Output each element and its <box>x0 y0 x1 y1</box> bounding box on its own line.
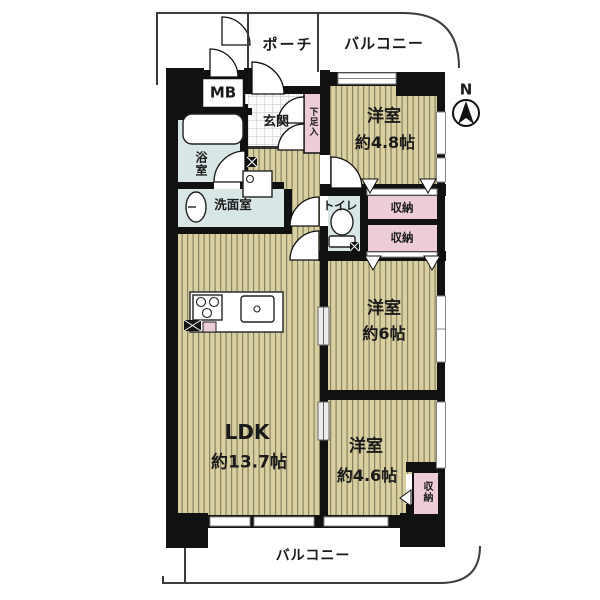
floorplan-drawing <box>0 0 600 600</box>
ldk-size: 約13.7帖 <box>211 455 287 472</box>
bathroom-label: 浴室 <box>195 151 207 177</box>
balcony-top-label: バルコニー <box>344 37 424 52</box>
toilet-bowl <box>331 209 353 235</box>
bathtub <box>183 114 243 144</box>
compass <box>453 100 479 126</box>
ldk-name: LDK <box>225 422 270 442</box>
bedroom2-size: 約6帖 <box>362 326 405 342</box>
closet-upper-label: 収納 <box>391 202 414 214</box>
bedroom1-name: 洋室 <box>367 109 401 126</box>
compass-north-label: N <box>460 83 473 98</box>
floorplan-canvas: ポーチ バルコニー バルコニー MB 玄関 下足入 浴室 洗面室 トイレ 収納 … <box>0 0 600 600</box>
bedroom3-closet-label: 収納 <box>421 481 431 503</box>
bedroom2-name: 洋室 <box>367 301 401 318</box>
vanity-counter <box>243 171 272 197</box>
toilet-label: トイレ <box>323 200 358 212</box>
meter-box-label: MB <box>210 86 236 101</box>
bedroom3-size: 約4.6帖 <box>337 468 397 484</box>
porch-label: ポーチ <box>262 38 313 53</box>
bedroom1-size: 約4.8帖 <box>355 135 415 151</box>
entrance-label: 玄関 <box>263 116 289 129</box>
washroom-label: 洗面室 <box>214 199 252 212</box>
balcony-bottom-label: バルコニー <box>276 549 351 563</box>
closet-lower-label: 収納 <box>391 232 414 244</box>
shoe-cabinet-label: 下足入 <box>308 107 317 137</box>
bedroom3-name: 洋室 <box>349 439 383 456</box>
